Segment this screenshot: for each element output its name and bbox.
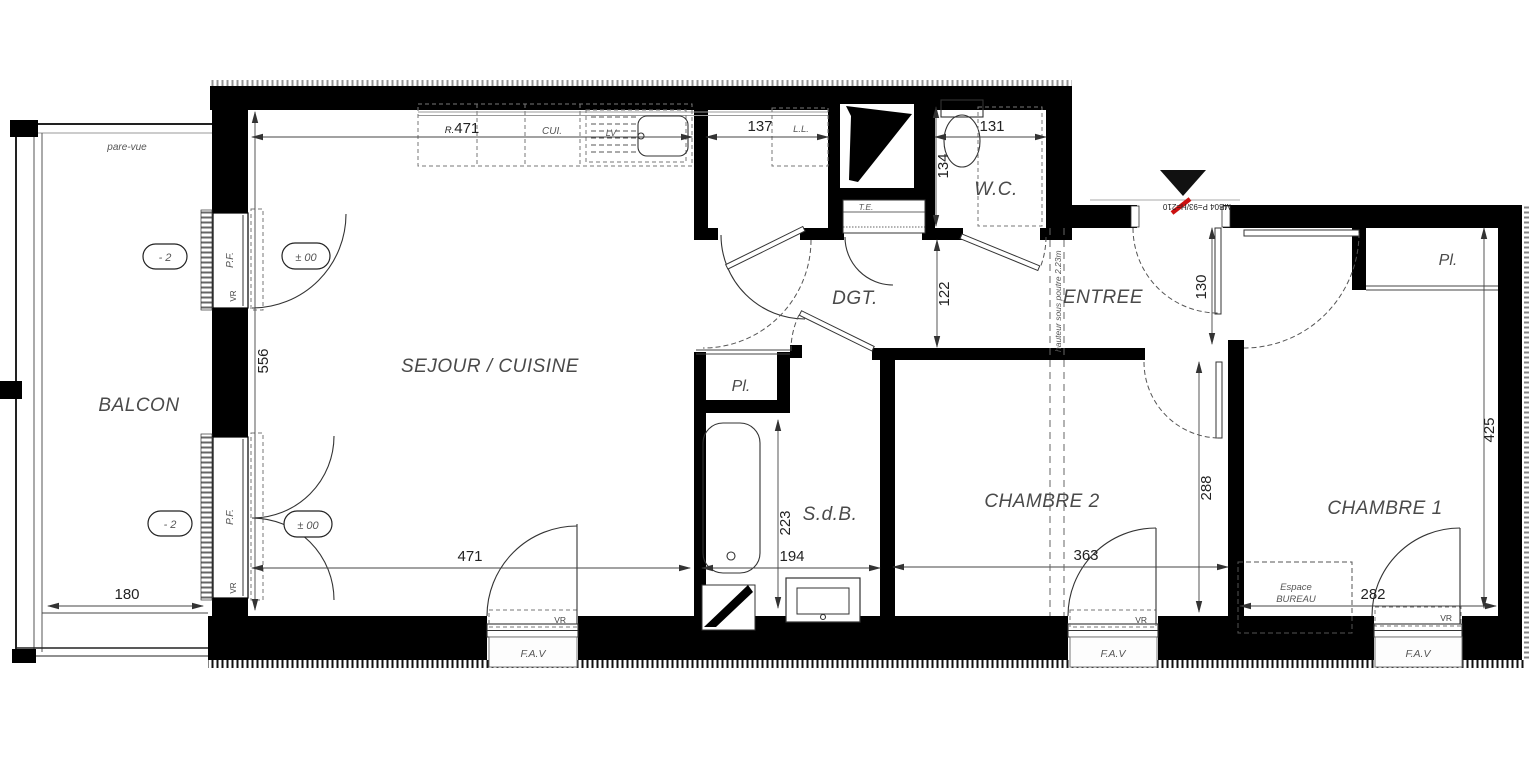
floor-plan: pare-vue (0, 0, 1529, 757)
kitchen-label: CUI. (542, 126, 562, 137)
wall-sdb-pl-bottom (694, 400, 790, 413)
wall-closet-west (694, 110, 708, 237)
kitchen: CUI. LV (418, 104, 828, 166)
wall-chambre1-west (1228, 340, 1244, 660)
wall-chambre2-north (872, 348, 1145, 360)
dim-chambre2-depth: 288 (1198, 362, 1215, 612)
te-label: T.E. (859, 202, 874, 212)
fav-label: F.A.V (1406, 648, 1432, 660)
bathtub-drain (727, 552, 735, 560)
vr-label: VR (1135, 615, 1147, 625)
room-label-balcon: BALCON (98, 395, 179, 416)
room-label-dgt: DGT. (832, 288, 878, 309)
desk-label-line1: Espace (1280, 582, 1312, 593)
door-leaf-entry (1215, 228, 1221, 314)
te-door-arc (845, 237, 893, 285)
wall-duct-leg-a (828, 200, 844, 240)
door-leaf-wc (960, 234, 1040, 271)
dim-text: 288 (1198, 475, 1215, 500)
dishwasher-label: LV (606, 128, 618, 138)
balcony-pier (0, 381, 22, 399)
window-vr-zone (251, 433, 263, 600)
sink-unit-outline (586, 110, 686, 162)
dim-chambre1-depth: 425 (1481, 228, 1498, 608)
wall-right (1498, 205, 1522, 660)
level-value: - 2 (164, 519, 177, 531)
dim-balcon: 180 (48, 586, 203, 606)
desk-label-line2: BUREAU (1276, 594, 1316, 605)
wall-top (210, 86, 1072, 110)
door-arc-balcony-double-a (252, 436, 334, 518)
door-arc-sejour-passage (703, 240, 811, 348)
doors (703, 206, 1359, 438)
pf-label: P.F. (225, 252, 236, 268)
room-label-chambre1: CHAMBRE 1 (1327, 498, 1442, 519)
level-value: - 2 (159, 252, 172, 264)
door-leaf-chambre2 (1216, 362, 1222, 438)
dim-text: 223 (777, 510, 794, 535)
washbasin-bowl (797, 588, 849, 614)
door-leaf-chambre1 (1244, 230, 1359, 236)
dim-text: 131 (979, 118, 1004, 135)
shutter-box (201, 210, 212, 310)
door-arc-chambre1 (1244, 233, 1359, 348)
door-leaf-closet (726, 227, 805, 270)
dim-degagement: 122 (936, 240, 953, 347)
hatch-right (1524, 205, 1529, 660)
wall-bottom-c (1158, 616, 1374, 660)
dim-cellier-width: 137 (706, 118, 828, 137)
vr-label: VR (229, 290, 238, 301)
dim-text: 180 (114, 586, 139, 603)
balcony-pier (10, 120, 38, 137)
window-vr-zone (251, 209, 263, 310)
entry-annotations: MB04 P=93/H=210 (1160, 170, 1231, 213)
dim-kitchen-run: R.471 (252, 120, 692, 137)
dim-chambre2-width: 363 (893, 547, 1228, 567)
dim-text: 471 (457, 548, 482, 565)
room-label-sejour: SEJOUR / CUISINE (401, 356, 579, 377)
entry-jamb-left (1131, 206, 1139, 227)
wall-top-right-a (1072, 205, 1137, 228)
pf-label: P.F. (225, 509, 236, 525)
dim-text: 122 (936, 281, 953, 306)
ch1-closet (1366, 286, 1498, 290)
dimensions: R.471 556 137 131 134 122 130 288 (48, 107, 1498, 612)
dim-text: 137 (747, 118, 772, 135)
window-swing-arc (487, 526, 577, 616)
wall-wc-south-a (935, 228, 963, 240)
dim-text: 130 (1193, 274, 1210, 299)
door-arc-wc (1040, 237, 1046, 268)
wall-hall-north-a (694, 228, 718, 240)
closet-label-sdb: Pl. (732, 378, 751, 395)
wall-sdb-west (694, 352, 706, 616)
faucet (638, 133, 644, 139)
hatch-bottom (208, 660, 1524, 668)
electrical-board: T.E. (843, 200, 925, 285)
dim-text: 194 (779, 548, 804, 565)
level-value: ± 00 (295, 252, 317, 264)
wall-top-right-b (1223, 205, 1500, 228)
wall-sdb-north-stub (790, 345, 802, 358)
door-ref-label: MB04 P=93/H=210 (1162, 202, 1231, 211)
wall-left-a (212, 86, 248, 213)
vr-label: VR (1440, 613, 1452, 623)
dim-sdb-width: 194 (702, 548, 880, 568)
washer-label: L.L. (793, 124, 809, 135)
room-label-entree: ENTREE (1063, 287, 1143, 308)
pare-vue-label: pare-vue (106, 142, 147, 153)
dim-text: 134 (935, 153, 952, 178)
dim-text: 282 (1360, 586, 1385, 603)
wall-wc-south-b (1040, 228, 1072, 240)
door-leaf-sdb (799, 311, 874, 351)
dim-text: 363 (1073, 547, 1098, 564)
shutter-box (201, 434, 212, 600)
bathtub (703, 423, 760, 573)
beam-note: hauteur sous poutre 2.23m (1053, 250, 1063, 352)
hatch-top (210, 80, 1072, 86)
te-box (843, 200, 925, 233)
vr-label: VR (554, 615, 566, 625)
vr-label: VR (229, 582, 238, 593)
room-label-wc: W.C. (974, 179, 1018, 200)
wall-left-b (212, 308, 248, 437)
entry-arrow-icon (1160, 170, 1206, 196)
balcony-pier (12, 649, 36, 663)
wall-wc-east (1046, 86, 1072, 228)
door-arc-chambre2 (1144, 362, 1219, 438)
dim-text: R.471 (445, 120, 480, 137)
fav-label: F.A.V (1101, 648, 1127, 660)
room-label-sdb: S.d.B. (803, 504, 858, 525)
wall-bottom-d (1462, 616, 1522, 660)
wall-sdb-ch2-divider (880, 348, 895, 616)
floor-plan-canvas: pare-vue (0, 0, 1529, 757)
wall-sdb-pl-right (777, 352, 790, 413)
room-label-chambre2: CHAMBRE 2 (984, 491, 1099, 512)
sink-bowl (638, 116, 688, 156)
level-value: ± 00 (297, 520, 319, 532)
dim-wc-width: 131 (935, 118, 1046, 137)
fav-label: F.A.V (521, 648, 547, 660)
closet-label-ch1: Pl. (1439, 252, 1458, 269)
dim-text: 425 (1481, 417, 1498, 442)
window-swing-arc (1068, 528, 1156, 616)
wall-bottom-a (208, 616, 487, 660)
beam-annotation: hauteur sous poutre 2.23m (1050, 228, 1064, 616)
dim-entree: 130 (1193, 228, 1212, 344)
dim-text: 556 (255, 348, 272, 373)
window-sejour: VR F.A.V (487, 524, 578, 667)
dim-wc-depth: 134 (935, 107, 952, 226)
